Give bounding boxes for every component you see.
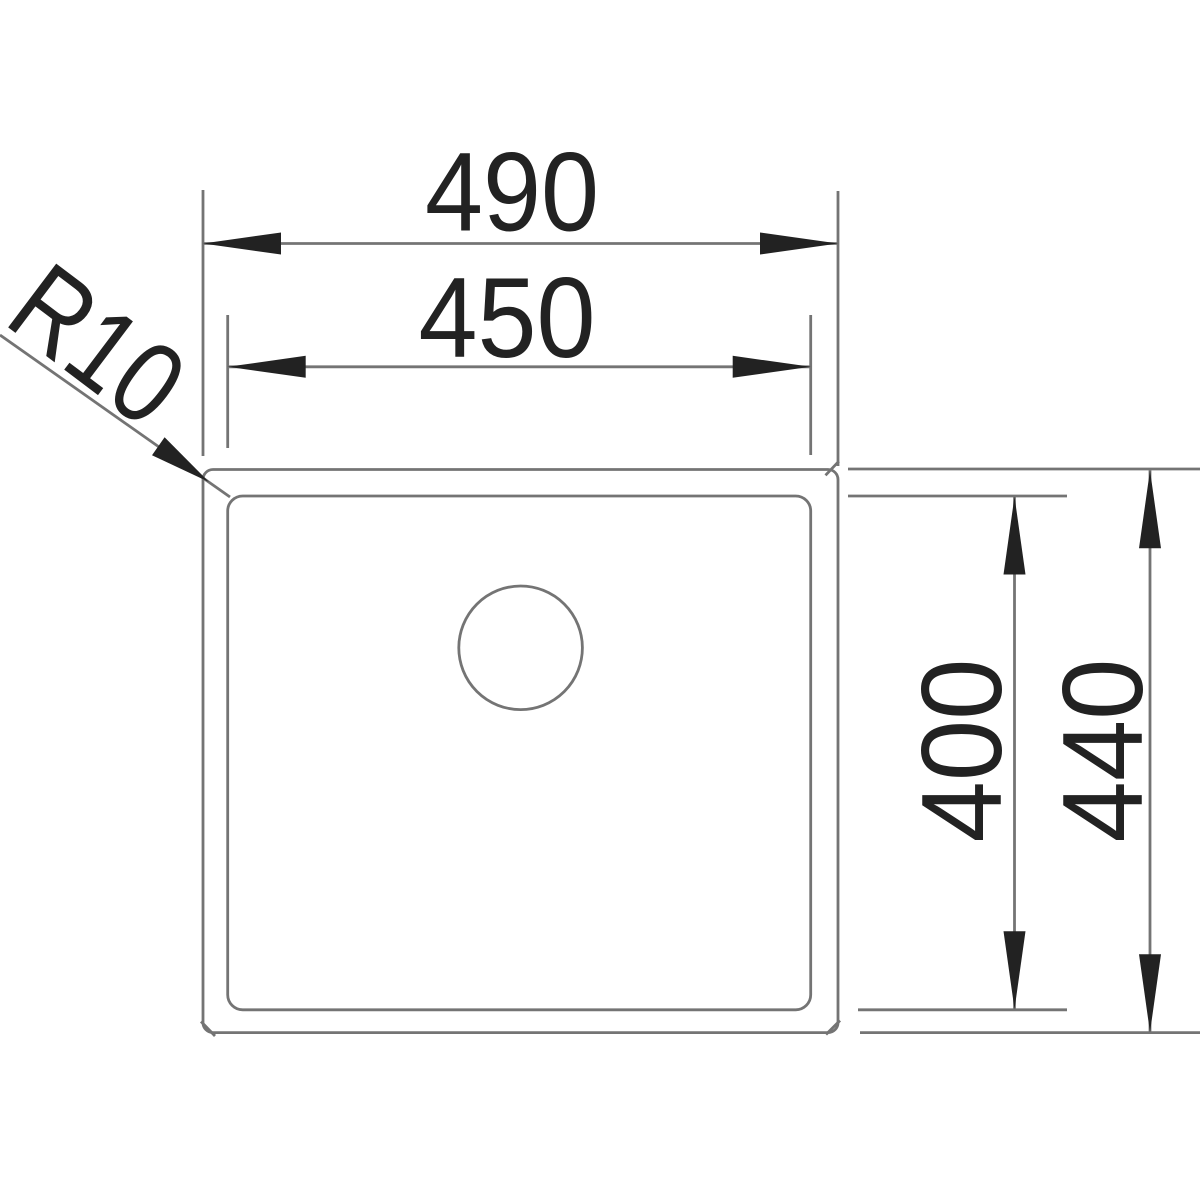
svg-text:400: 400 (899, 659, 1026, 843)
svg-text:440: 440 (1040, 659, 1167, 843)
svg-text:450: 450 (419, 255, 596, 382)
svg-text:490: 490 (425, 130, 599, 255)
